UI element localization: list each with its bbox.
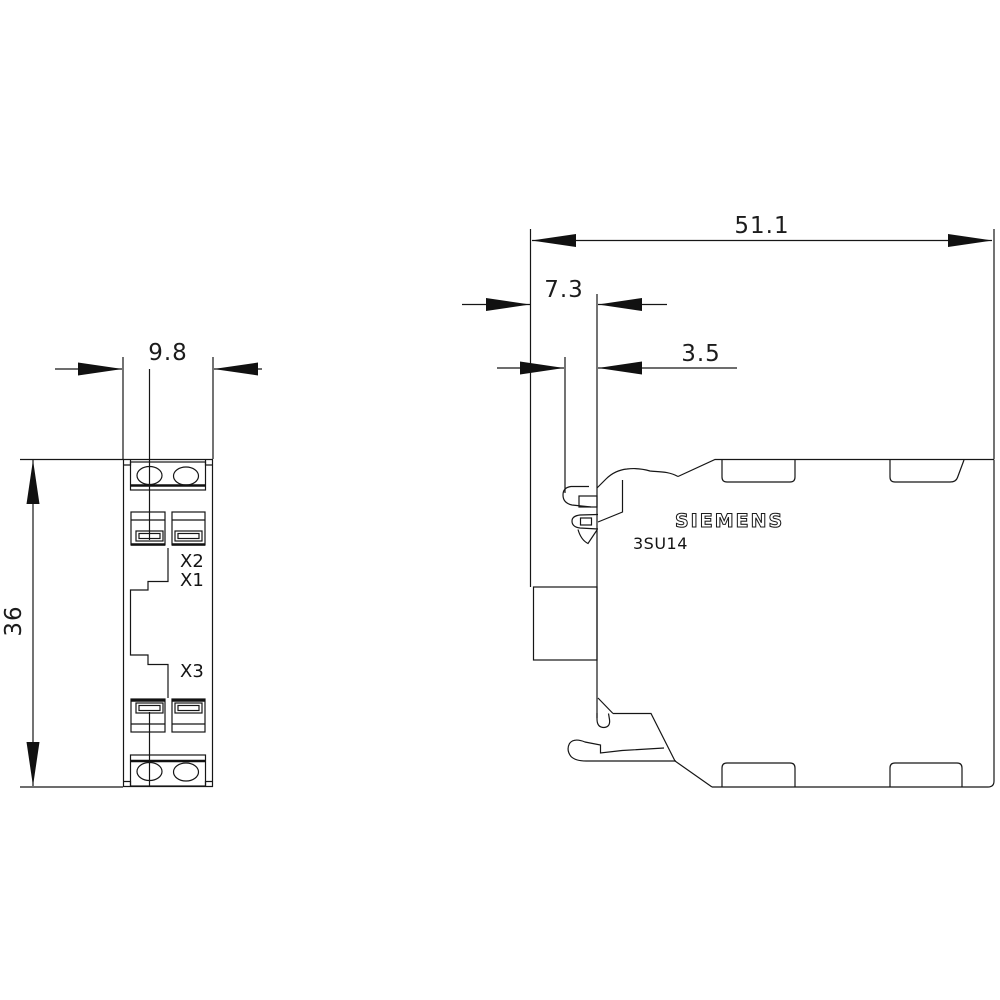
bottom-slot-2: [890, 763, 962, 787]
arrowhead-right: [948, 234, 993, 247]
top-latch: [563, 480, 623, 544]
terminal-slot-inner: [139, 706, 160, 711]
arrowhead-right: [214, 363, 259, 376]
model-number-text: 3SU14: [633, 534, 688, 553]
front-top-screw-block: [131, 462, 206, 490]
dimension-width-9-8: 9.8: [55, 340, 262, 459]
arrowhead-left: [520, 362, 564, 375]
bottom-slider-latch: [568, 740, 676, 761]
screw-head-right: [174, 467, 199, 485]
front-upper-terminals: [131, 512, 205, 545]
latch-hook-upper: [563, 487, 591, 508]
dimension-drawing-canvas: X2 X1 X3 9.8 36: [0, 0, 1000, 1000]
technical-drawing-page: X2 X1 X3 9.8 36: [0, 0, 1000, 1000]
terminal-slot: [175, 531, 202, 541]
screw-block-frame: [131, 755, 206, 786]
latch-snap-tab: [572, 515, 598, 530]
front-view: X2 X1 X3: [123, 369, 213, 787]
front-outline: [123, 460, 213, 788]
top-slot-2: [890, 460, 964, 482]
bottom-foot-hook: [597, 713, 610, 728]
terminal-slot-inner: [178, 534, 199, 539]
latch-tooth: [578, 530, 597, 544]
terminal-label-x2: X2: [180, 551, 204, 572]
arrowhead-left: [532, 234, 577, 247]
terminal-slot-inner: [178, 706, 199, 711]
dimension-latch-7-3: 7.3: [462, 277, 667, 311]
latch-face: [598, 480, 623, 522]
dimension-inner-3-5: 3.5: [497, 341, 737, 375]
arrowhead-bottom: [27, 742, 40, 786]
dimension-value: 51.1: [734, 213, 789, 239]
dimension-value: 3.5: [681, 341, 721, 367]
dimension-value: 7.3: [544, 277, 584, 303]
terminal-box: [172, 512, 205, 545]
dimension-total-51-1: 51.1: [532, 213, 993, 247]
din-rail-block: [534, 587, 598, 660]
arrowhead-left: [486, 298, 530, 311]
terminal-slot: [136, 703, 163, 713]
arrowhead-right: [598, 298, 642, 311]
dimension-value: 36: [1, 605, 27, 636]
front-inner-contour: [131, 548, 169, 698]
front-corner-notches: [123, 460, 213, 787]
side-right-edge: [988, 460, 994, 788]
terminal-label-x1: X1: [180, 570, 204, 591]
terminal-label-x3: X3: [180, 661, 204, 682]
brand-logo-text: SIEMENS: [675, 510, 784, 532]
side-top-edge: [678, 460, 994, 477]
side-top-wavy-edge: [597, 469, 678, 488]
screw-head-right: [174, 763, 199, 781]
arrowhead-right: [598, 362, 642, 375]
bottom-slot-1: [722, 763, 795, 787]
arrowhead-top: [27, 460, 40, 504]
dimension-height-36: 36: [1, 460, 123, 788]
extension-lines: [20, 460, 123, 788]
extension-lines: [123, 357, 213, 459]
latch-hook-box: [579, 496, 597, 507]
front-bottom-screw-block: [131, 755, 206, 786]
terminal-box: [172, 699, 205, 732]
side-bottom-left-outline: [598, 698, 712, 787]
terminal-slot: [175, 703, 202, 713]
top-slot-1: [722, 460, 795, 482]
dimension-value: 9.8: [148, 340, 188, 366]
latch-snap-box: [581, 518, 592, 525]
front-lower-terminals: [131, 699, 205, 732]
arrowhead-left: [78, 363, 123, 376]
